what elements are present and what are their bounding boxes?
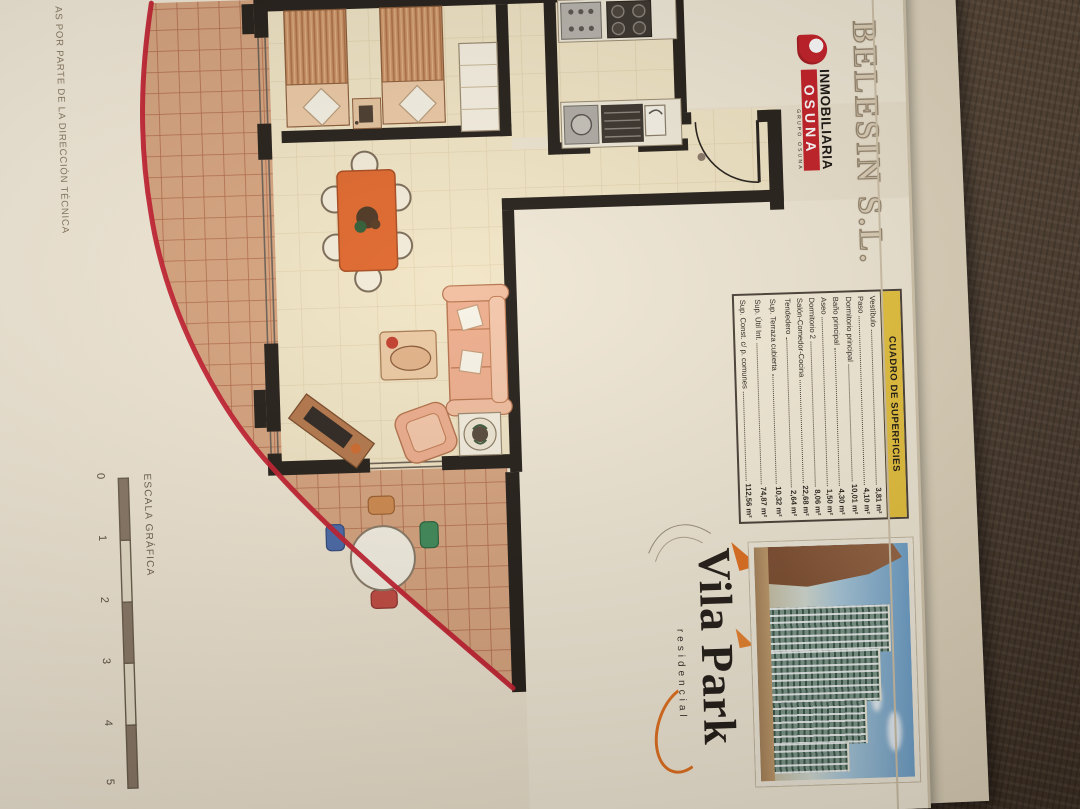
apartment-tower	[770, 699, 867, 746]
surface-label: Paso	[854, 296, 867, 314]
floorplan-sheet: AS POR PARTE DE LA DIRECCIÓN TÉCNICA ESC…	[0, 0, 928, 809]
surface-value: 10,01 m²	[847, 484, 860, 515]
inmobiliaria-osuna-logo: INMOBILIARIA OSUNA GRUPO OSUNA	[791, 34, 840, 257]
photo-of-floorplan-sheet: AS POR PARTE DE LA DIRECCIÓN TÉCNICA ESC…	[0, 0, 1080, 809]
bed-2	[380, 6, 446, 124]
scale-tick-1: 1	[94, 535, 108, 549]
surface-value: 74,87 m²	[757, 487, 770, 518]
dotted-leader	[786, 337, 792, 487]
nightstand	[352, 98, 381, 129]
scale-tick-5: 5	[102, 779, 116, 793]
kitchen-counter-top	[557, 0, 676, 42]
dotted-leader	[743, 392, 747, 481]
surfaces-table-rows: Vestíbulo 3,81 m² Paso 4,10 m² Dormitori…	[736, 292, 885, 522]
surface-label: Baño principal	[829, 297, 843, 345]
surface-label: Vestíbulo	[866, 296, 879, 328]
wardrobe	[459, 42, 500, 131]
surface-label: Dormitorio 2	[805, 297, 818, 339]
dotted-leader	[871, 330, 877, 485]
dotted-leader	[822, 318, 828, 486]
surface-label: Aseo	[817, 297, 830, 315]
surface-value: 8,06 m²	[811, 489, 824, 516]
surface-label: Salón-Comedor-Cocina	[793, 298, 808, 378]
surface-value: 112,56 m²	[742, 483, 755, 518]
apartment-tower	[772, 741, 850, 774]
agency-name-line2: OSUNA	[801, 69, 820, 170]
dotted-leader	[772, 374, 776, 484]
surface-value: 4,30 m²	[835, 488, 848, 515]
surface-value: 3,81 m²	[872, 487, 885, 514]
bed-1	[284, 9, 350, 127]
apartment-tower	[769, 649, 882, 704]
coffee-table	[380, 330, 437, 380]
surface-label: Sup. Útil Int.	[751, 299, 764, 341]
dining-table	[337, 170, 398, 272]
surface-label: Sup. Const. c/ p. comunes	[736, 300, 751, 389]
kitchen-counter-bottom	[561, 99, 682, 149]
scale-tick-3: 3	[98, 658, 112, 672]
dotted-leader	[799, 380, 803, 482]
surface-label: Dormitorio principal	[841, 296, 855, 362]
dotted-leader	[810, 342, 816, 486]
vilapark-logo: Vila Park residencial	[636, 531, 756, 790]
surface-value: 4,10 m²	[860, 488, 873, 515]
scale-tick-4: 4	[100, 720, 114, 734]
surface-value: 22,68 m²	[798, 485, 811, 516]
scale-tick-2: 2	[96, 597, 110, 611]
dotted-leader	[835, 348, 840, 486]
surface-value: 1,50 m²	[823, 489, 836, 516]
surface-value: 2,64 m²	[786, 490, 799, 517]
surface-label: Tendedero	[780, 298, 793, 334]
sofa	[442, 284, 512, 416]
scale-tick-0: 0	[92, 473, 106, 487]
dotted-leader	[848, 365, 853, 481]
apartment-tower	[768, 604, 892, 655]
washer-door-icon	[571, 114, 592, 135]
osuna-logo-icon	[797, 34, 828, 65]
plant-side-table	[458, 412, 501, 455]
surface-label: Sup. Terraza cubierta	[766, 299, 780, 371]
graphic-scale-bar	[118, 478, 138, 788]
dotted-leader	[858, 316, 864, 484]
dotted-leader	[757, 344, 762, 484]
surface-value: 10,32 m²	[772, 486, 785, 517]
